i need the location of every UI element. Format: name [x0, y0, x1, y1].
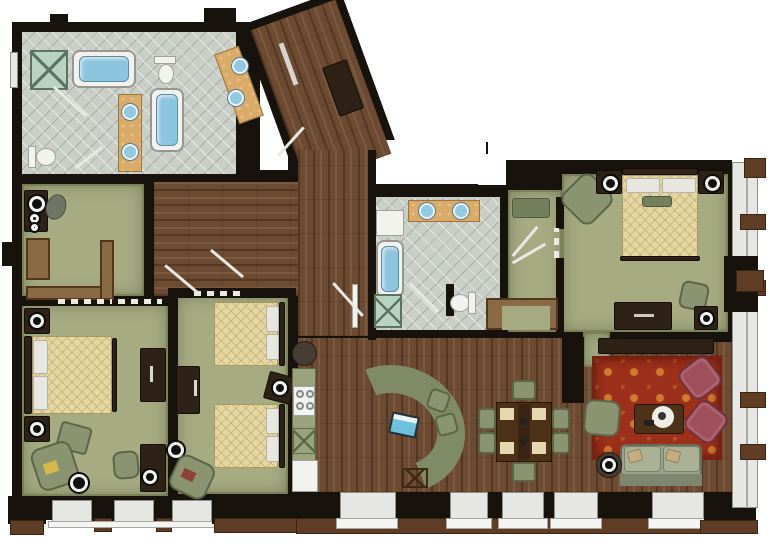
- closet-study-right: [100, 240, 114, 300]
- knob-study-1: [30, 214, 39, 223]
- lamp-bed1-b: [30, 422, 44, 436]
- closet-master-inner: [502, 306, 550, 330]
- sill-se-corner: [700, 520, 758, 534]
- dresser-bed1: [140, 348, 166, 402]
- toilet-nw-tank: [28, 146, 36, 168]
- window-sill-main-4: [550, 518, 602, 529]
- opening-dash-study-bed1: [58, 299, 112, 304]
- centerpiece-2: [520, 438, 527, 445]
- chimney-bump-top: [204, 8, 236, 24]
- sink-nw-1: [122, 104, 138, 120]
- bed-master-headboard: [622, 168, 698, 175]
- opening-dash-dressing-master: [554, 228, 559, 258]
- opening-dash-bed1-top: [118, 299, 162, 304]
- toilet-nw2-tank: [154, 56, 176, 64]
- kitchen-sink-round: [292, 341, 317, 366]
- desk-bed1: [140, 444, 166, 492]
- sill-pier-east: [736, 270, 764, 292]
- bed2a-pillow-a: [266, 306, 279, 332]
- sill-block-east-3: [740, 392, 766, 408]
- sill-block-east-top: [744, 158, 766, 178]
- window-sill-main-3: [498, 518, 548, 529]
- bed-master-footboard: [620, 256, 700, 261]
- burner-3: [296, 402, 304, 410]
- armchair-living-green: [582, 398, 621, 437]
- toilet-nw2-bowl: [158, 64, 174, 84]
- bench-dressing: [512, 198, 550, 218]
- bed2a-pillow-b: [266, 334, 279, 360]
- sill-block-east-1: [740, 214, 766, 230]
- lamp-bed1-a: [30, 314, 44, 328]
- burner-4: [306, 402, 314, 410]
- refrigerator: [292, 460, 318, 492]
- bump-left-edge: [2, 242, 14, 266]
- sink-bath-c-1: [419, 203, 435, 219]
- place-setting-2: [532, 408, 546, 420]
- opening-dash-bed2-top: [194, 291, 246, 296]
- sill-block-east-4: [740, 444, 766, 460]
- exterior-notch-b: [478, 154, 506, 186]
- floor-hall-upper-wood: [154, 182, 310, 296]
- dining-table-runner: [518, 404, 530, 460]
- linen-cabinet-bath-c: [376, 210, 404, 236]
- lamp-master-2: [705, 176, 720, 191]
- lamp-side-table-living: [602, 458, 616, 472]
- desk-lamp-bed1: [143, 470, 157, 484]
- sill-sw-corner: [10, 520, 44, 535]
- desk-chair-bed1: [112, 450, 140, 480]
- floor-outlet-hatch: [402, 468, 428, 488]
- toilet-c-tank: [468, 292, 476, 314]
- wall-study-right: [144, 184, 154, 296]
- bed-master-pillow-2: [662, 178, 696, 193]
- floorplan-canvas: [0, 0, 780, 549]
- window-bay-main-1: [340, 492, 396, 520]
- window-bay-bed-1: [52, 500, 92, 522]
- window-bay-main-2: [450, 492, 488, 520]
- coffee-table-item: [644, 420, 654, 426]
- bed1-pillow-a: [33, 340, 48, 374]
- lamp-master-1: [603, 176, 618, 191]
- sink-foyer-2: [228, 90, 244, 106]
- dishwasher-hatch: [293, 428, 315, 454]
- sofa-back: [620, 474, 702, 486]
- place-setting-3: [500, 442, 514, 454]
- dresser-bed2-handle: [194, 380, 197, 396]
- dresser-master-handle: [634, 314, 654, 317]
- bed2b-pillow-b: [266, 436, 279, 462]
- window-sill-main-2: [446, 518, 492, 529]
- sink-nw-2: [122, 144, 138, 160]
- shower-c: [374, 294, 402, 328]
- lamp-bed2: [273, 381, 287, 395]
- window-bay-main-4: [554, 492, 598, 520]
- bathtub-nw-basin: [79, 56, 129, 82]
- sink-bath-c-2: [453, 203, 469, 219]
- window-bay-bed-2: [114, 500, 154, 522]
- window-slit-left: [10, 52, 18, 88]
- bathtub-nw2-basin: [156, 94, 178, 146]
- lamp-side-table-master: [700, 312, 713, 325]
- window-sill-main-1: [336, 518, 398, 529]
- dining-chair-right-1: [552, 408, 570, 430]
- dining-chair-right-2: [552, 432, 570, 454]
- bed1-footboard: [112, 338, 117, 412]
- bathtub-c-basin: [381, 246, 399, 292]
- dining-chair-left-2: [478, 432, 496, 454]
- tray-item: [658, 412, 666, 420]
- burner-1: [296, 390, 304, 398]
- place-setting-1: [500, 408, 514, 420]
- burner-2: [306, 390, 314, 398]
- bed2b-pillow-a: [266, 408, 279, 434]
- bed2a-headboard: [279, 302, 285, 366]
- closet-study-left: [26, 238, 50, 280]
- bed1-pillow-b: [33, 376, 48, 410]
- window-sill-bed-row: [48, 521, 216, 528]
- wall-bath-center-top: [374, 185, 508, 197]
- toilet-nw-bowl: [36, 148, 56, 166]
- window-sill-main-5: [648, 518, 708, 529]
- window-bay-main-5: [652, 492, 704, 520]
- exterior-notch-a: [376, 140, 486, 184]
- window-bay-main-3: [502, 492, 544, 520]
- lamp-study: [29, 196, 45, 212]
- bed-master-pillow-1: [626, 178, 660, 193]
- place-setting-4: [532, 442, 546, 454]
- shower-nw: [30, 50, 68, 90]
- bed-master-runner: [642, 196, 672, 207]
- window-bay-bed-3: [172, 500, 212, 522]
- dining-chair-top: [512, 380, 536, 400]
- dining-chair-left-1: [478, 408, 496, 430]
- sink-foyer-1: [232, 58, 248, 74]
- toilet-c-bowl: [450, 294, 470, 312]
- bed2b-headboard: [279, 404, 285, 468]
- bump-top-left: [50, 14, 68, 24]
- dining-chair-bottom: [512, 462, 536, 482]
- tv-console-living: [598, 338, 714, 354]
- bed1-headboard: [24, 336, 32, 414]
- floor-lamp-bed1: [70, 474, 88, 492]
- knob-study-2: [31, 224, 38, 231]
- wall-column-living: [562, 337, 584, 403]
- centerpiece-1: [520, 418, 527, 425]
- dresser-bed1-handle: [150, 366, 153, 382]
